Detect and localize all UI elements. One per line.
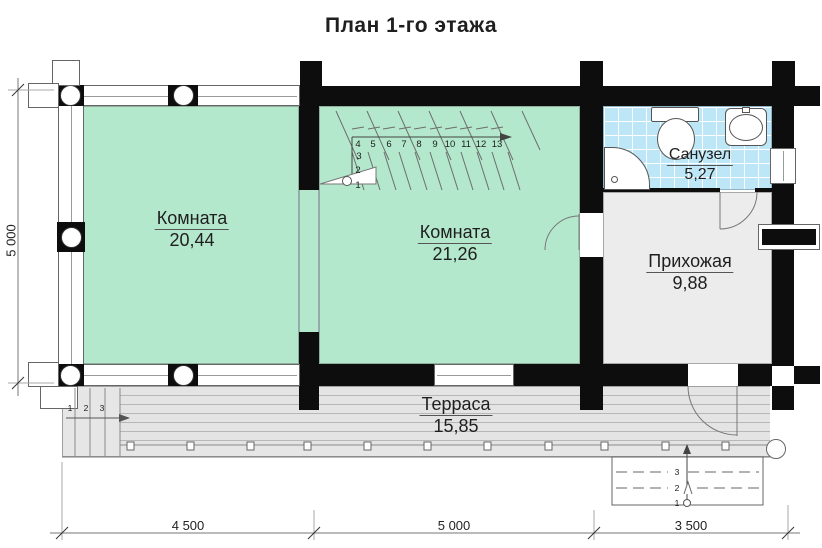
svg-text:1: 1 [355, 180, 360, 191]
terrace-name: Терраса [419, 394, 492, 416]
svg-text:2: 2 [84, 403, 89, 413]
dim-left-height: 5 000 [4, 224, 19, 257]
bathroom-label: Санузел 5,27 [667, 146, 733, 185]
room2-name: Комната [418, 222, 492, 244]
bathroom-name: Санузел [667, 146, 733, 166]
svg-text:1: 1 [675, 498, 680, 508]
svg-text:3: 3 [356, 151, 361, 162]
door-arc-room2 [545, 216, 579, 250]
hallway-name: Прихожая [646, 251, 733, 273]
svg-text:4: 4 [355, 139, 360, 150]
hallway-label: Прихожая 9,88 [646, 251, 733, 294]
svg-text:8: 8 [416, 139, 421, 150]
room1-name: Комната [155, 208, 229, 230]
svg-text:3: 3 [100, 403, 105, 413]
svg-text:5: 5 [370, 139, 375, 150]
hallway-area: 9,88 [646, 273, 733, 294]
bathroom-area: 5,27 [667, 166, 733, 185]
room2-area: 21,26 [418, 244, 492, 265]
door-arc-bathroom [720, 192, 757, 229]
svg-text:10: 10 [445, 139, 456, 150]
terrace-side-step-numbers: 1 2 3 [68, 403, 105, 413]
room1-label: Комната 20,44 [155, 208, 229, 251]
corner-post [767, 440, 786, 459]
floor-plan: План 1-го этажа [0, 0, 822, 548]
doors [545, 192, 757, 436]
entrance-step-numbers: 3 2 1 [675, 467, 680, 508]
dim-bottom-3: 3 500 [675, 518, 708, 533]
svg-text:2: 2 [675, 483, 680, 493]
entrance-steps [612, 444, 763, 507]
svg-text:7: 7 [401, 139, 406, 150]
terrace-label: Терраса 15,85 [419, 394, 492, 437]
svg-text:3: 3 [675, 467, 680, 477]
staircase [320, 111, 540, 190]
door-arc-terrace [688, 386, 737, 435]
terrace-area: 15,85 [419, 416, 492, 437]
svg-text:1: 1 [68, 403, 73, 413]
dim-bottom-2: 5 000 [438, 518, 471, 533]
svg-text:13: 13 [492, 139, 503, 150]
svg-text:6: 6 [386, 139, 391, 150]
svg-text:11: 11 [461, 139, 471, 150]
room1-area: 20,44 [155, 230, 229, 251]
svg-text:9: 9 [432, 139, 437, 150]
dim-bottom-1: 4 500 [172, 518, 205, 533]
svg-text:2: 2 [355, 165, 360, 176]
room2-label: Комната 21,26 [418, 222, 492, 265]
svg-text:12: 12 [476, 139, 487, 150]
